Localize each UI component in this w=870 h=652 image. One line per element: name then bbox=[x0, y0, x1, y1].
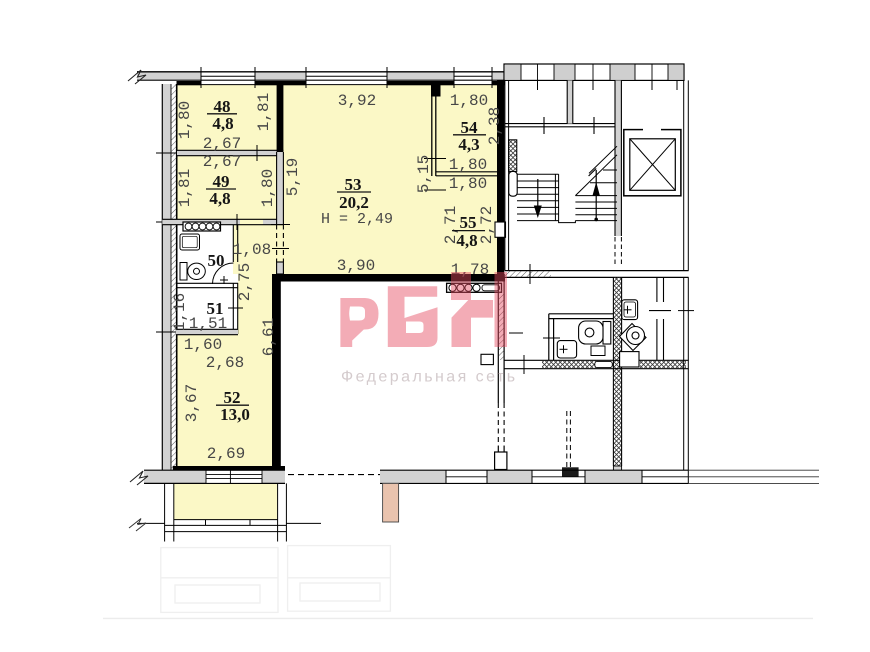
svg-text:2,75: 2,75 bbox=[236, 263, 254, 301]
svg-text:3,92: 3,92 bbox=[338, 92, 376, 110]
svg-text:55: 55 bbox=[460, 213, 477, 232]
svg-text:53: 53 bbox=[345, 175, 362, 194]
svg-text:2,38: 2,38 bbox=[486, 107, 504, 145]
svg-text:1,81: 1,81 bbox=[255, 93, 273, 131]
svg-text:4,8: 4,8 bbox=[212, 114, 233, 133]
svg-text:1,51: 1,51 bbox=[189, 315, 227, 333]
svg-text:1,81: 1,81 bbox=[176, 169, 194, 207]
svg-text:4,8: 4,8 bbox=[209, 189, 230, 208]
svg-text:4,8: 4,8 bbox=[456, 231, 477, 250]
svg-text:1,80: 1,80 bbox=[449, 156, 487, 174]
svg-text:2,67: 2,67 bbox=[203, 153, 241, 171]
svg-text:1,08: 1,08 bbox=[233, 241, 271, 259]
svg-text:H = 2,49: H = 2,49 bbox=[321, 211, 393, 228]
svg-text:1,80: 1,80 bbox=[450, 92, 488, 110]
svg-text:50: 50 bbox=[208, 251, 225, 270]
svg-text:5,15: 5,15 bbox=[415, 155, 433, 193]
svg-text:4,3: 4,3 bbox=[458, 135, 479, 154]
svg-text:6,61: 6,61 bbox=[260, 318, 278, 356]
svg-text:1,60: 1,60 bbox=[184, 336, 222, 354]
svg-text:2,72: 2,72 bbox=[478, 206, 496, 244]
svg-text:1,16: 1,16 bbox=[171, 293, 189, 331]
svg-text:20,2: 20,2 bbox=[339, 193, 369, 212]
svg-text:2,67: 2,67 bbox=[203, 135, 241, 153]
svg-text:2,69: 2,69 bbox=[207, 445, 245, 463]
svg-text:2,68: 2,68 bbox=[206, 354, 244, 372]
svg-text:1,80: 1,80 bbox=[176, 101, 194, 139]
svg-text:Федеральная сеть: Федеральная сеть bbox=[341, 369, 518, 386]
svg-text:3,90: 3,90 bbox=[337, 257, 375, 275]
svg-text:3,67: 3,67 bbox=[183, 384, 201, 422]
svg-text:1,80: 1,80 bbox=[449, 175, 487, 193]
svg-text:5,19: 5,19 bbox=[284, 158, 302, 196]
svg-text:13,0: 13,0 bbox=[220, 405, 250, 424]
svg-text:1,80: 1,80 bbox=[259, 169, 277, 207]
